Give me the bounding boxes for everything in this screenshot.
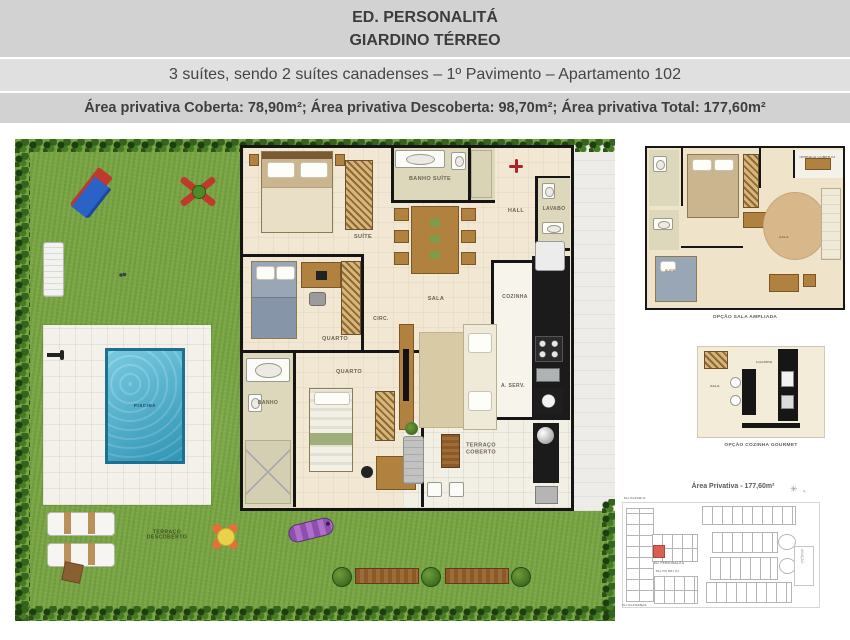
tv	[403, 349, 409, 401]
hedge-left	[15, 139, 30, 621]
plate	[430, 235, 440, 243]
dining-chair	[461, 252, 476, 265]
side-service-strip	[570, 145, 615, 511]
label-ed-personalita: ED. PERSONALITÁ	[654, 562, 684, 565]
parasol-hub	[217, 528, 235, 546]
terraco-descoberto-label: TERRAÇO DESCOBERTO	[137, 530, 197, 540]
label-banho: BANHO	[249, 400, 288, 406]
tv-cabinet	[399, 324, 414, 430]
dining-chair	[461, 208, 476, 221]
wall	[243, 350, 424, 353]
dining-chair	[394, 230, 409, 243]
north-marker-icon	[509, 159, 523, 173]
mini-bench	[805, 158, 831, 170]
desk-chair	[309, 292, 326, 306]
side-block: AVIAÇÃO	[794, 546, 814, 586]
mini-island	[742, 369, 756, 415]
parasol	[205, 516, 245, 556]
round-bush	[511, 567, 531, 587]
mini-terrace	[793, 150, 843, 178]
wardrobe	[375, 391, 395, 441]
terrace-table	[441, 434, 460, 468]
option-sala-ampliada-plan: SUÍTE SALA TERRAÇO COBERTO	[645, 146, 845, 310]
quarto1-bed	[251, 261, 297, 339]
wall	[391, 200, 495, 203]
label-circ: CIRC.	[366, 316, 395, 322]
compass-icon: ✳	[790, 484, 798, 495]
mini-wall	[681, 246, 743, 248]
area-info: Área privativa Coberta: 78,90m²; Área pr…	[0, 93, 850, 123]
garden-bench	[43, 242, 64, 297]
units-strip-mid-1	[712, 532, 778, 553]
terrace-plant	[405, 422, 418, 435]
pillow	[256, 266, 275, 280]
terrace-mat	[535, 486, 558, 504]
pillow	[300, 162, 328, 178]
label-ed-ritratto: ED. RITRATTO	[656, 570, 679, 573]
header-subtitle-band: 3 suítes, sendo 2 suítes canadenses – 1º…	[0, 59, 850, 91]
label-suite: SUÍTE	[343, 234, 383, 241]
plate	[430, 219, 440, 227]
round-bush	[332, 567, 352, 587]
fridge	[535, 241, 565, 271]
mini-sofa	[821, 188, 841, 260]
tv-on-desk	[316, 271, 327, 280]
wall	[361, 254, 364, 353]
headboard	[262, 152, 332, 159]
washer	[534, 388, 563, 414]
hedge-bottom	[15, 606, 615, 621]
label-ed-eleganza: ED. ELEGANZA	[622, 604, 647, 607]
wall	[535, 176, 570, 178]
stove	[535, 336, 563, 362]
quarto2-bed	[309, 388, 353, 472]
label-quarto-1: QUARTO	[315, 336, 355, 343]
dining-table	[411, 206, 459, 274]
kitchen-sink	[536, 368, 560, 382]
units-grid-elevato	[626, 508, 654, 602]
units-grid-ritratto	[654, 576, 698, 604]
units-strip-bottom	[706, 582, 792, 603]
mini-sink	[781, 371, 794, 387]
mini-bed-2	[655, 256, 697, 302]
caterpillar-toy	[287, 516, 336, 545]
mini-wardrobe	[743, 154, 759, 208]
plate	[430, 251, 440, 259]
terrace-lounge	[403, 436, 424, 484]
mini-cabinet	[704, 351, 728, 369]
mini-label-cozinha: COZINHA	[756, 361, 772, 364]
sphere-ornament	[537, 427, 554, 444]
playground-slide	[51, 156, 128, 232]
label-banho-suite: BANHO SUÍTE	[407, 176, 453, 183]
vanity-sink	[246, 358, 290, 382]
wall	[535, 176, 538, 251]
option-cozinha-gourmet-caption: OPÇÃO COZINHA GOURMET	[710, 443, 812, 448]
mini-wall	[742, 423, 800, 428]
mini-label-sala-2: SALA	[710, 385, 720, 388]
label-lavabo: LAVABO	[538, 206, 569, 212]
plan-subtitle: 3 suítes, sendo 2 suítes canadenses – 1º…	[0, 59, 850, 91]
plan-name: GIARDINO TÉRREO	[0, 31, 850, 50]
mini-round-rug	[763, 192, 827, 260]
bathtub	[395, 150, 445, 168]
mini-chair	[803, 274, 816, 287]
desk	[301, 262, 341, 288]
bed-throw	[310, 433, 352, 445]
terrace-chair	[449, 482, 464, 497]
mini-stool	[730, 377, 741, 388]
site-key-plan: Área Privativa - 177,60m² ✳ N ED. ELEVAT…	[618, 478, 850, 636]
nightstand	[335, 154, 345, 166]
pillow	[714, 159, 734, 171]
dining-chair	[394, 252, 409, 265]
desk-chair	[361, 466, 373, 478]
terrace-chair	[427, 482, 442, 497]
option-cozinha-gourmet: SALA COZINHA OPÇÃO COZINHA GOURMET	[697, 346, 825, 458]
suite-bed	[261, 151, 333, 233]
swimming-pool: PISCINA	[105, 348, 185, 464]
label-terraco-coberto: TERRAÇO COBERTO	[459, 443, 503, 457]
toilet	[542, 183, 555, 199]
label-ed-elevato: ED. ELEVATO	[624, 497, 645, 500]
shower-stall	[471, 150, 492, 198]
wardrobe	[345, 160, 373, 230]
header-title-band: ED. PERSONALITÁ GIARDINO TÉRREO	[0, 0, 850, 57]
mini-wall	[681, 148, 683, 206]
bird	[118, 272, 127, 278]
mini-stool	[730, 395, 741, 406]
mini-bed	[687, 154, 739, 218]
pillow	[276, 266, 295, 280]
pillow	[314, 392, 350, 405]
label-sala: SALA	[415, 296, 457, 303]
sink	[542, 222, 564, 234]
seesaw-hub	[192, 185, 206, 199]
deck-side-table	[61, 561, 84, 584]
living-rug	[419, 332, 467, 428]
wood-bench	[355, 568, 419, 584]
label-hall: HALL	[502, 208, 530, 215]
bed-blanket	[262, 187, 332, 232]
units-strip-mid-2	[710, 557, 778, 580]
hedge-right	[602, 499, 615, 621]
mini-table	[769, 274, 799, 292]
mini-bath-floor	[649, 210, 679, 250]
pillow	[692, 159, 712, 171]
option-cozinha-gourmet-plan: SALA COZINHA	[697, 346, 825, 438]
sofa-pillow	[468, 333, 492, 353]
side-block-label: AVIAÇÃO	[800, 549, 803, 563]
wall	[293, 353, 296, 507]
mini-label-sala: SALA	[779, 236, 789, 239]
building-name: ED. PERSONALITÁ	[0, 0, 850, 31]
mini-sink	[653, 218, 673, 230]
nightstand	[249, 154, 259, 166]
option-sala-ampliada: SUÍTE SALA TERRAÇO COBERTO OPÇÃO SALA AM…	[645, 146, 845, 326]
pillow	[267, 162, 295, 178]
dining-chair	[461, 230, 476, 243]
mini-label-terraco: TERRAÇO COBERTO	[799, 156, 835, 159]
header-area-band: Área privativa Coberta: 78,90m²; Área pr…	[0, 93, 850, 123]
mini-label-suite: SUÍTE	[665, 270, 676, 273]
lounge-chair	[47, 543, 115, 567]
label-a-serv: A. SERV.	[495, 383, 532, 389]
toilet	[451, 152, 466, 170]
sofa-pillow	[468, 391, 492, 411]
round-bush	[421, 567, 441, 587]
units-strip-top	[702, 506, 796, 525]
dining-chair	[394, 208, 409, 221]
bed-blanket	[252, 297, 296, 338]
wood-bench	[445, 568, 509, 584]
shower-stall	[245, 440, 291, 504]
wall	[391, 148, 394, 203]
sofa	[463, 324, 497, 430]
mini-stove	[781, 395, 794, 409]
playground-seesaw	[175, 170, 221, 214]
label-quarto-2: QUARTO	[329, 369, 369, 376]
pool-label: PISCINA	[134, 404, 156, 408]
label-cozinha: COZINHA	[495, 294, 535, 300]
wardrobe	[341, 261, 361, 335]
terrace-column	[533, 423, 559, 483]
option-sala-ampliada-caption: OPÇÃO SALA AMPLIADA	[665, 315, 825, 320]
outdoor-shower	[47, 353, 63, 357]
mini-toilet	[653, 156, 667, 172]
compass-north-letter: N	[803, 490, 806, 494]
wall	[243, 254, 363, 257]
highlighted-unit	[653, 545, 665, 558]
mini-wall	[759, 148, 761, 188]
lounge-chair	[47, 512, 115, 536]
apartment-floorplan: SUÍTE BANHO SUÍTE HALL LAVABO SALA CIRC.…	[240, 145, 574, 511]
